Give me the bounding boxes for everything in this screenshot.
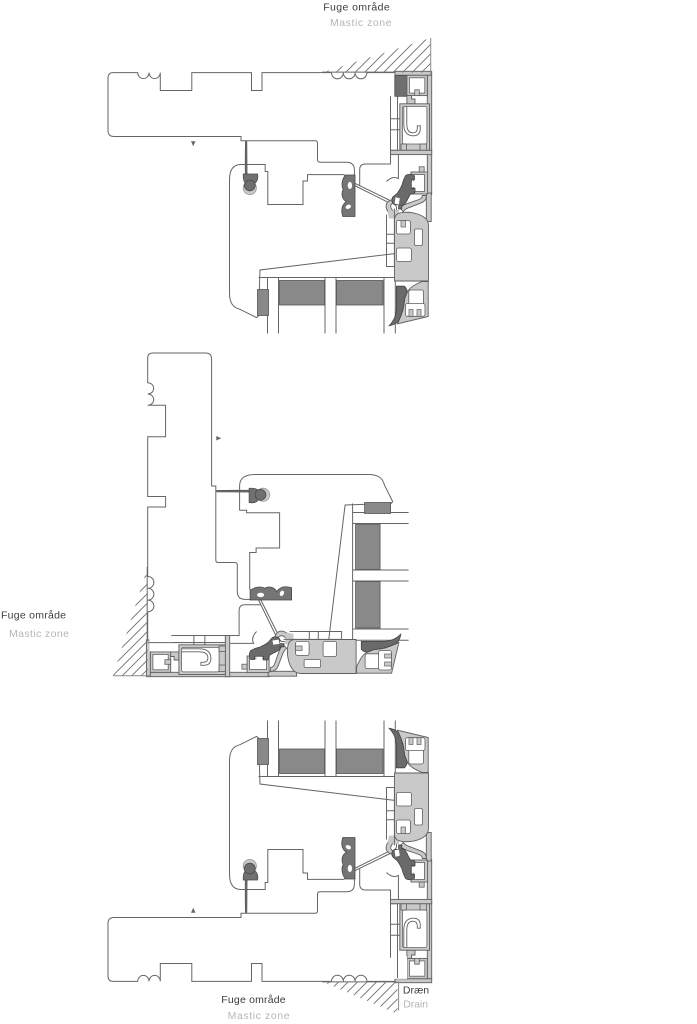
svg-text:Mastic zone: Mastic zone	[9, 628, 69, 640]
svg-text:Fuge område: Fuge område	[1, 610, 66, 622]
svg-text:Fuge område: Fuge område	[323, 1, 390, 13]
svg-text:Drain: Drain	[403, 998, 428, 1010]
svg-text:Dræn: Dræn	[403, 984, 429, 996]
svg-text:Mastic zone: Mastic zone	[228, 1010, 290, 1022]
svg-text:Fuge område: Fuge område	[221, 994, 285, 1006]
svg-text:Mastic zone: Mastic zone	[330, 17, 392, 29]
